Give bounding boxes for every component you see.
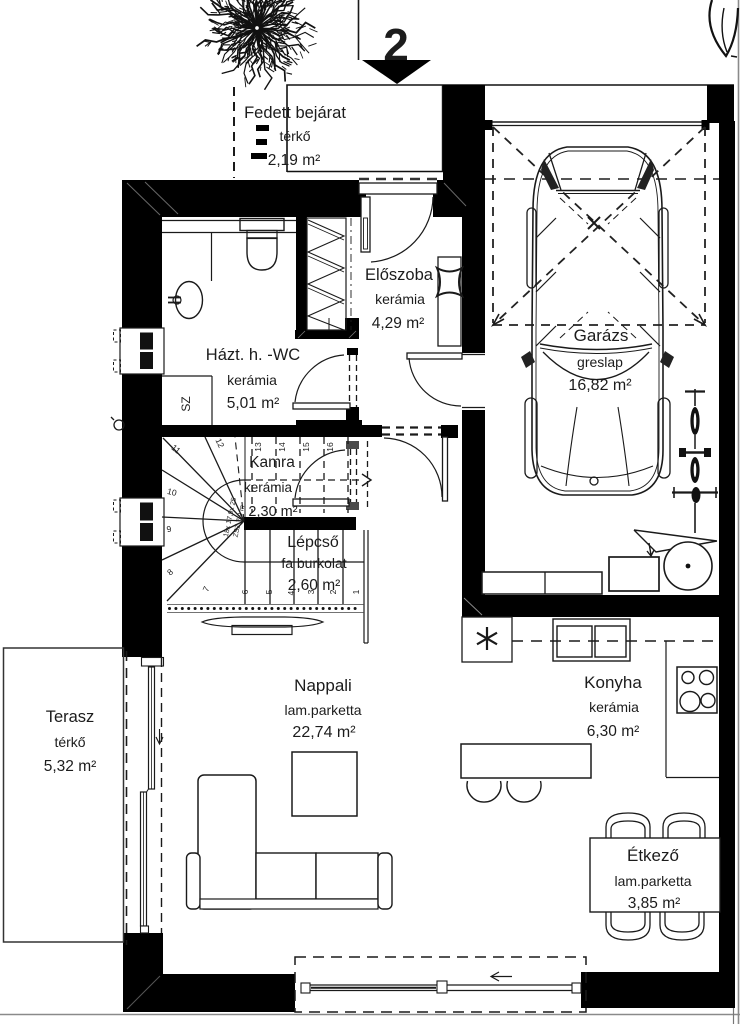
svg-text:Előszoba: Előszoba	[365, 266, 434, 284]
svg-text:16,82 m²: 16,82 m²	[568, 377, 632, 394]
svg-text:Kamra: Kamra	[249, 454, 295, 471]
svg-text:15: 15	[301, 442, 311, 452]
svg-text:5: 5	[264, 589, 274, 594]
svg-text:4,29 m²: 4,29 m²	[372, 315, 425, 332]
svg-text:Fedett bejárat: Fedett bejárat	[244, 104, 346, 122]
svg-text:Terasz: Terasz	[46, 708, 95, 726]
svg-text:Garázs: Garázs	[574, 326, 629, 345]
svg-text:6,30 m²: 6,30 m²	[587, 723, 640, 740]
svg-text:Lépcső: Lépcső	[287, 534, 339, 551]
svg-text:5,32 m²: 5,32 m²	[44, 758, 97, 775]
svg-text:SZ: SZ	[179, 396, 193, 411]
svg-text:Házt. h. -WC: Házt. h. -WC	[206, 346, 301, 364]
svg-text:5,01 m²: 5,01 m²	[227, 395, 280, 412]
svg-text:lam.parketta: lam.parketta	[284, 702, 361, 718]
svg-text:lam.parketta: lam.parketta	[614, 873, 691, 889]
svg-text:greslap: greslap	[577, 354, 623, 370]
svg-text:6: 6	[240, 589, 250, 594]
svg-text:1: 1	[351, 589, 361, 594]
svg-text:2,19 m²: 2,19 m²	[268, 152, 321, 169]
svg-text:kerámia: kerámia	[244, 480, 293, 495]
svg-text:2,60 m²: 2,60 m²	[288, 577, 341, 594]
svg-text:Étkező: Étkező	[627, 846, 679, 865]
svg-text:térkő: térkő	[279, 128, 310, 144]
svg-text:fa burkolat: fa burkolat	[281, 555, 346, 571]
svg-text:kerámia: kerámia	[589, 699, 639, 715]
svg-text:2,30 m²: 2,30 m²	[248, 504, 297, 520]
svg-text:13: 13	[253, 442, 263, 452]
svg-text:16: 16	[325, 442, 335, 452]
svg-text:kerámia: kerámia	[227, 372, 277, 388]
svg-text:térkő: térkő	[54, 734, 85, 750]
svg-text:3,85 m²: 3,85 m²	[628, 895, 681, 912]
svg-text:22,74 m²: 22,74 m²	[292, 724, 356, 741]
svg-text:Nappali: Nappali	[294, 676, 352, 695]
svg-text:14: 14	[277, 442, 287, 452]
svg-text:kerámia: kerámia	[375, 291, 425, 307]
svg-text:Konyha: Konyha	[584, 673, 642, 692]
